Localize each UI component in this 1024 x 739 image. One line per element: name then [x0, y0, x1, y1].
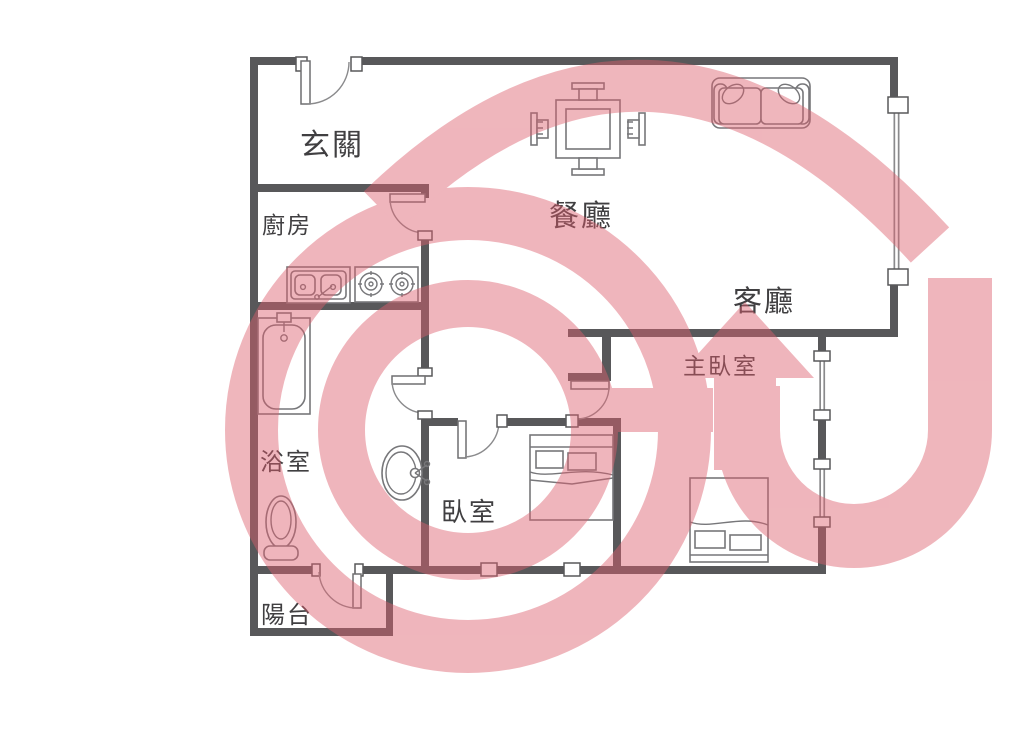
room-label-master-bedroom: 主臥室 — [683, 347, 758, 381]
room-label-balcony: 陽台 — [261, 595, 313, 630]
living-room-window — [888, 97, 908, 285]
dining-table — [531, 83, 645, 175]
sofa — [712, 78, 810, 128]
room-label-kitchen: 廚房 — [262, 206, 312, 240]
bathroom-door — [392, 368, 432, 419]
entrance-door — [296, 57, 362, 104]
room-label-dining-room: 餐廳 — [549, 191, 613, 235]
bedroom-door — [458, 415, 507, 458]
room-label-bedroom: 臥室 — [441, 492, 497, 529]
balcony-door — [312, 564, 363, 608]
bathtub — [258, 313, 310, 414]
floor-plan-page: 玄關 廚房 餐廳 客廳 主臥室 浴室 臥室 陽台 — [0, 0, 1024, 739]
master-bed — [690, 478, 768, 562]
room-label-bathroom: 浴室 — [260, 442, 312, 477]
room-label-living-room: 客廳 — [733, 278, 795, 320]
toilet — [264, 496, 298, 560]
floor-plan-drawing — [0, 0, 1024, 739]
room-label-entry: 玄關 — [300, 120, 364, 164]
gas-stove — [355, 267, 418, 302]
kitchen-sink — [287, 267, 350, 303]
bedroom-bed — [530, 435, 613, 520]
kitchen-door — [390, 194, 432, 240]
